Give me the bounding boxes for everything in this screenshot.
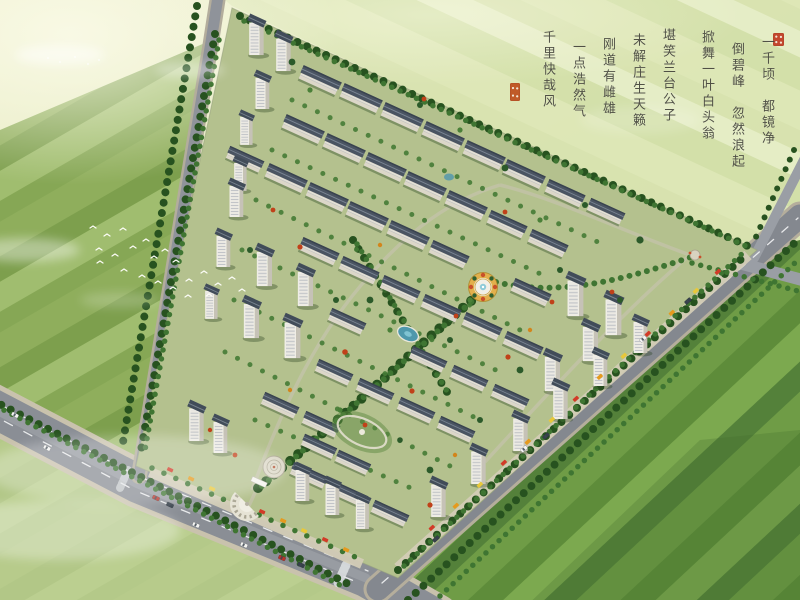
central-fountain-plaza [469, 273, 498, 302]
poem-column-4: 堪笑兰台公子 [658, 28, 677, 124]
calligraphy-poem: 一千顷 都镜净 倒碧峰 忽然浪起 掀舞一叶白头翁 堪笑兰台公子 未解庄生天籁 刚… [538, 26, 776, 170]
poem-column-6: 刚道有雌雄 [598, 37, 617, 117]
poem-column-2: 倒碧峰 忽然浪起 [727, 42, 746, 170]
seal-stamp-bottom-icon [510, 83, 520, 101]
poem-column-8: 千里快哉风 [538, 30, 557, 110]
poem-column-7: 一点浩然气 [568, 40, 587, 120]
small-pond [444, 174, 454, 181]
aerial-rendering: 一千顷 都镜净 倒碧峰 忽然浪起 掀舞一叶白头翁 堪笑兰台公子 未解庄生天籁 刚… [0, 0, 800, 600]
poem-column-3: 掀舞一叶白头翁 [697, 30, 716, 142]
poem-column-1: 一千顷 都镜净 [757, 35, 776, 147]
poem-column-5: 未解庄生天籁 [628, 33, 647, 129]
